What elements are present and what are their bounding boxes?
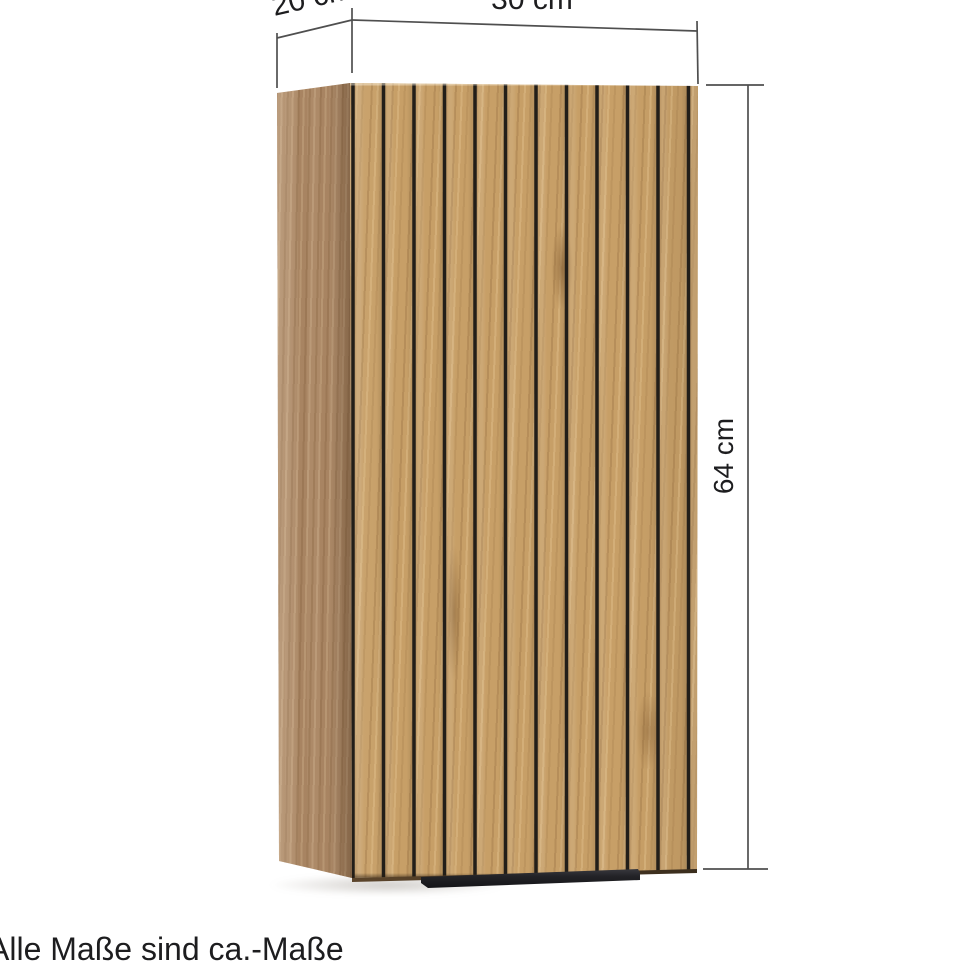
cabinet-side-panel <box>276 83 353 880</box>
measurement-disclaimer: Alle Maße sind ca.-Maße <box>0 931 344 968</box>
product-dimension-diagram: 20 cm 30 cm 64 cm Alle Maße sind ca.-Maß… <box>0 0 970 971</box>
cabinet-illustration <box>0 0 970 971</box>
cabinet-front-panel <box>350 83 698 880</box>
width-dimension-label: 30 cm <box>462 0 602 16</box>
height-dimension-label: 64 cm <box>708 408 740 504</box>
